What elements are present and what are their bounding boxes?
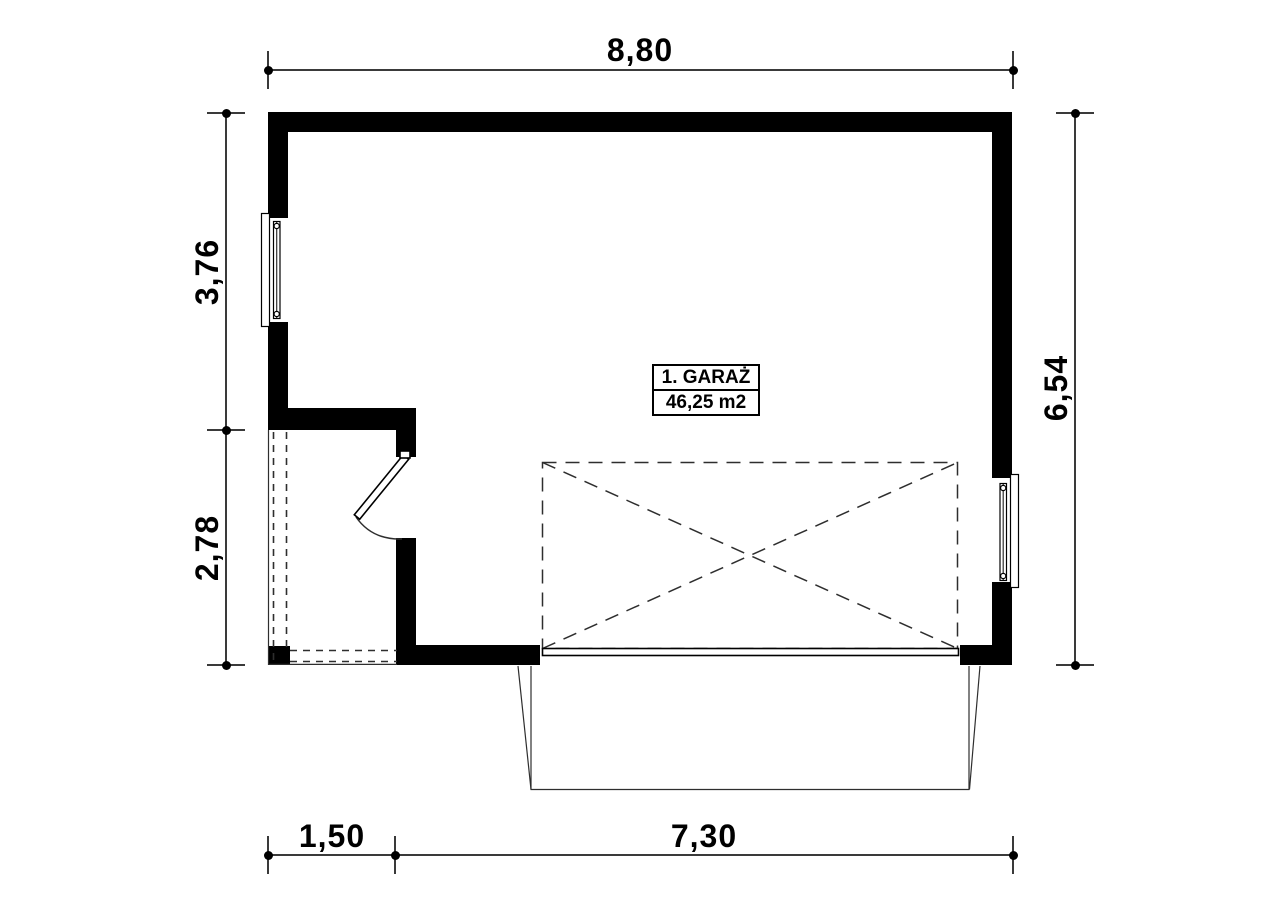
dim-marker-dot [1009, 66, 1018, 75]
room-area: 46,25 m2 [654, 389, 758, 414]
dim-marker-dot [222, 109, 231, 118]
dimension-label-bottom-right: 7,30 [634, 818, 774, 854]
floor-plan-canvas: 8,80 3,76 2,78 6,54 1,50 7,30 1. GARAŻ 4… [0, 0, 1280, 905]
window-left [262, 214, 281, 327]
door-swing-arc [356, 517, 402, 539]
porch-outline [268, 430, 397, 665]
window-sill [1011, 475, 1019, 588]
dim-marker-dot [1071, 661, 1080, 670]
garage-door-panel [543, 649, 959, 656]
window-right [1000, 475, 1019, 588]
dimension-label-bottom-left: 1,50 [262, 818, 402, 854]
dim-marker-dot [1009, 851, 1018, 860]
garage-door-apron [518, 666, 980, 790]
window-sill [262, 214, 270, 327]
dim-marker-dot [222, 661, 231, 670]
room-name: 1. GARAŻ [654, 366, 758, 389]
dim-marker-dot [222, 426, 231, 435]
dim-line-bottom [268, 854, 1013, 856]
dimension-label-left-upper: 3,76 [189, 202, 225, 342]
dim-marker-dot [264, 66, 273, 75]
room-label-box: 1. GARAŻ 46,25 m2 [652, 364, 760, 416]
dim-line-right [1074, 113, 1076, 665]
dimension-label-right: 6,54 [1038, 318, 1074, 458]
swing-door [354, 451, 410, 539]
door-leaf [354, 455, 408, 519]
garage-door-opening-x [543, 463, 958, 649]
door-hinge [400, 451, 410, 458]
dim-marker-dot [1071, 109, 1080, 118]
dim-line-left [225, 113, 227, 665]
plan-linework [0, 0, 1280, 905]
dim-line-top [268, 69, 1013, 71]
dimension-label-left-lower: 2,78 [189, 478, 225, 618]
dimension-label-top: 8,80 [570, 32, 710, 68]
